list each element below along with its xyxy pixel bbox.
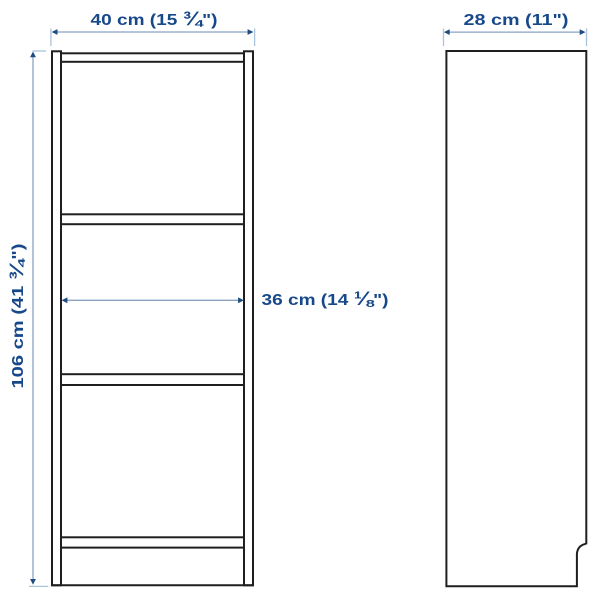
svg-text:36 cm (14 ⅛"): 36 cm (14 ⅛") (262, 289, 389, 310)
svg-text:106 cm (41 ¾"): 106 cm (41 ¾") (6, 244, 28, 389)
svg-text:28 cm (11"): 28 cm (11") (464, 12, 569, 29)
svg-text:40 cm (15 ¾"): 40 cm (15 ¾") (91, 9, 218, 30)
